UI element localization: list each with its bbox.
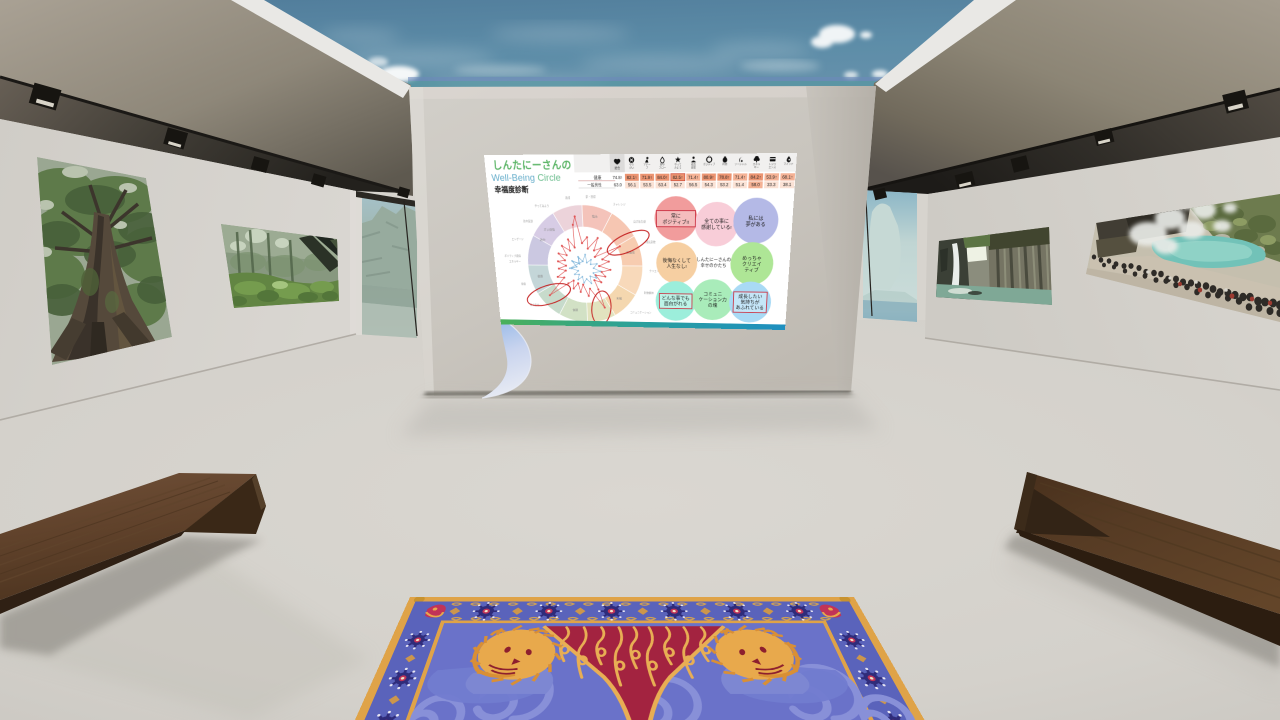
svg-text:マインド: マインド: [783, 162, 794, 166]
svg-text:チャレンジ: チャレンジ: [613, 202, 626, 206]
svg-text:ポジティブ!!: ポジティブ!!: [663, 218, 690, 226]
svg-text:夢・目標: 夢・目標: [586, 195, 596, 199]
svg-text:夢がある: 夢がある: [746, 220, 766, 228]
svg-text:82.5↑: 82.5↑: [673, 175, 683, 180]
svg-text:74.8↑: 74.8↑: [612, 175, 622, 180]
svg-text:84.2↑: 84.2↑: [750, 175, 761, 180]
svg-text:コミュニ: コミュニ: [703, 291, 722, 297]
svg-text:56.1: 56.1: [628, 183, 637, 188]
svg-text:利他: 利他: [616, 296, 622, 300]
svg-text:一般男性: 一般男性: [587, 182, 602, 187]
svg-text:84.0↑: 84.0↑: [657, 175, 667, 180]
svg-text:あふれている: あふれている: [736, 305, 765, 312]
svg-text:がい: がい: [629, 165, 634, 169]
svg-text:Well-Being Circle: Well-Being Circle: [491, 173, 561, 184]
svg-text:熱中没頭: 熱中没頭: [523, 219, 533, 223]
svg-text:自己効力感: 自己効力感: [633, 220, 646, 224]
svg-text:ソーシャル: ソーシャル: [734, 163, 747, 166]
svg-text:クリエイ: クリエイ: [742, 261, 762, 268]
svg-text:利他精神: 利他精神: [644, 291, 654, 295]
svg-text:71.4↑: 71.4↑: [688, 175, 698, 180]
svg-text:63.4: 63.4: [658, 183, 667, 188]
svg-text:ポジ感情: ポジ感情: [544, 227, 556, 232]
svg-text:ポジティブ感情: ポジティブ感情: [504, 254, 521, 258]
svg-text:コミュニケーション: コミュニケーション: [630, 311, 652, 315]
svg-text:達成: 達成: [565, 196, 570, 200]
svg-text:気持ちが: 気持ちが: [740, 298, 760, 305]
svg-text:健康: 健康: [594, 174, 603, 181]
svg-text:エンス: エンス: [769, 165, 777, 169]
svg-text:意欲: 意欲: [691, 165, 696, 169]
svg-text:強み: 強み: [592, 214, 598, 219]
svg-text:52.7: 52.7: [674, 183, 683, 188]
svg-text:ギー: ギー: [754, 165, 760, 169]
svg-text:私には: 私には: [748, 214, 763, 222]
svg-text:58.0: 58.0: [751, 182, 760, 187]
svg-text:幸福度診断: 幸福度診断: [494, 184, 529, 194]
svg-text:常に: 常に: [671, 212, 681, 220]
svg-text:56.5: 56.5: [689, 183, 698, 188]
svg-text:51.4: 51.4: [736, 182, 745, 187]
svg-text:人生なし!: 人生なし!: [667, 262, 687, 269]
svg-text:しんたにーさんの: しんたにーさんの: [492, 160, 572, 172]
svg-text:ティブ: ティブ: [744, 266, 759, 273]
svg-text:後悔なくして: 後悔なくして: [663, 256, 691, 264]
svg-text:54.3: 54.3: [705, 182, 714, 187]
svg-text:感謝している!: 感謝している!: [701, 223, 732, 231]
svg-text:信頼: 信頼: [573, 307, 579, 311]
svg-text:成長したい: 成長したい: [738, 293, 762, 300]
svg-text:38.1: 38.1: [783, 182, 792, 187]
svg-text:53.2: 53.2: [720, 182, 729, 187]
svg-text:エネルギー: エネルギー: [509, 260, 521, 264]
svg-text:フロー: フロー: [659, 165, 667, 169]
svg-text:71.9↑: 71.9↑: [642, 175, 652, 180]
svg-text:53.9↑: 53.9↑: [766, 175, 777, 180]
svg-text:やってみよう: やってみよう: [534, 204, 549, 208]
svg-text:利他: 利他: [722, 162, 727, 166]
svg-text:68.1↑: 68.1↑: [782, 175, 793, 180]
svg-text:みよう: みよう: [674, 165, 682, 169]
svg-text:成長意欲: 成長意欲: [646, 240, 656, 244]
svg-text:71.4↑: 71.4↑: [735, 175, 746, 180]
svg-text:の塊: の塊: [708, 301, 718, 308]
svg-text:82.1↑: 82.1↑: [627, 175, 637, 180]
svg-text:健康: 健康: [521, 282, 526, 286]
svg-text:33.3: 33.3: [767, 182, 776, 187]
svg-text:面白がれる: 面白がれる: [664, 300, 687, 307]
svg-text:総合: 総合: [615, 165, 621, 170]
svg-text:53.5: 53.5: [643, 183, 652, 188]
svg-text:エンゲージ: エンゲージ: [512, 237, 524, 241]
svg-text:健康: 健康: [537, 274, 543, 278]
svg-text:78.8↑: 78.8↑: [719, 175, 730, 180]
svg-text:熱中: 熱中: [540, 237, 546, 242]
svg-text:63.0: 63.0: [614, 182, 623, 187]
svg-text:ポジティブ: ポジティブ: [703, 162, 716, 166]
svg-text:めっちゃ: めっちゃ: [742, 255, 762, 262]
svg-text:全ての事に: 全ての事に: [704, 217, 729, 225]
svg-text:80.9↑: 80.9↑: [704, 175, 715, 180]
